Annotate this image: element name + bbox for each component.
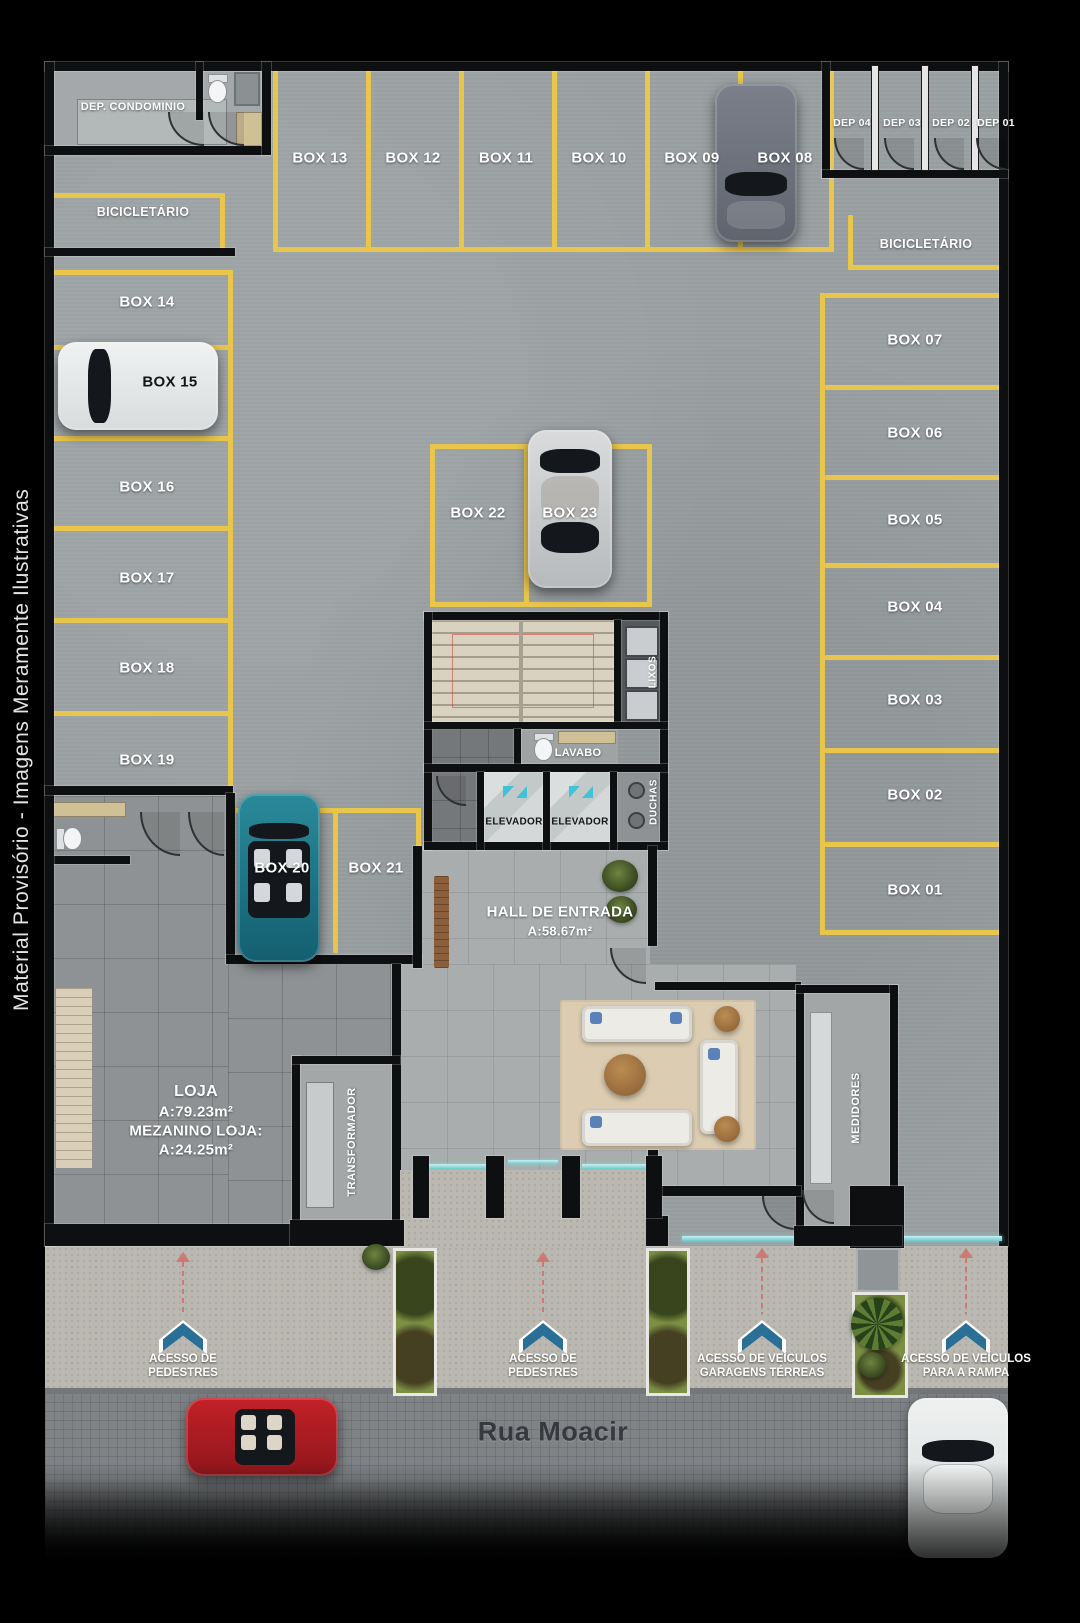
- box-label-15: BOX 15: [142, 374, 197, 391]
- access-label: ACESSO DE PEDESTRES: [148, 1352, 218, 1380]
- parking-line: [333, 808, 338, 953]
- access-line1: ACESSO DE: [509, 1353, 577, 1365]
- wall: [872, 66, 878, 170]
- lavabo-counter: [558, 731, 616, 744]
- stair-divider: [519, 620, 523, 722]
- dep-label-04: DEP 04: [833, 117, 871, 129]
- side-table: [714, 1116, 740, 1142]
- ramp-gate-glass: [902, 1236, 1002, 1241]
- watermark-text: Material Provisório - Imagens Meramente …: [2, 450, 42, 1050]
- wood-bench: [434, 876, 449, 968]
- toilet: [535, 739, 552, 760]
- wall: [514, 729, 521, 769]
- wc-vanity: [52, 802, 126, 817]
- hall-area: A:58.67m²: [528, 924, 593, 939]
- elevator-logo-icon: [569, 786, 593, 798]
- box-label-06: BOX 06: [887, 425, 942, 442]
- pillow: [590, 1116, 602, 1128]
- parking-line: [825, 385, 1005, 390]
- parking-line: [459, 70, 464, 250]
- access-line1: ACESSO DE VEÍCULOS: [697, 1353, 827, 1365]
- box-label-14: BOX 14: [119, 294, 174, 311]
- parking-line: [647, 444, 652, 607]
- box-label-05: BOX 05: [887, 512, 942, 529]
- room-label-duchas: DUCHAS: [649, 779, 660, 825]
- plant: [858, 1352, 886, 1378]
- parking-line: [273, 70, 278, 250]
- room-label-transformador: TRANSFORMADOR: [346, 1087, 358, 1196]
- access-label: ACESSO DE PEDESTRES: [508, 1352, 578, 1380]
- parking-line: [645, 70, 650, 250]
- direction-arrow-icon: [535, 1252, 551, 1318]
- box-label-23: BOX 23: [542, 505, 597, 522]
- staircase: [432, 620, 614, 722]
- box-label-20: BOX 20: [254, 860, 309, 877]
- box-label-10: BOX 10: [571, 150, 626, 167]
- access-line2: PEDESTRES: [148, 1367, 218, 1379]
- plant: [362, 1244, 390, 1270]
- trash-bin: [625, 626, 659, 657]
- facade-wall: [45, 1224, 295, 1246]
- parking-line: [552, 70, 557, 250]
- wall: [45, 146, 270, 155]
- box-label-17: BOX 17: [119, 570, 174, 587]
- parking-line: [848, 215, 853, 270]
- facade-pillar: [413, 1156, 429, 1218]
- wall: [45, 786, 233, 795]
- facade-pillar: [486, 1156, 504, 1218]
- parking-line: [825, 930, 1005, 935]
- parking-line: [430, 444, 435, 607]
- wall: [424, 764, 668, 772]
- wall: [413, 846, 422, 968]
- bottom-fade: [0, 1462, 1080, 1623]
- box-label-21: BOX 21: [348, 860, 403, 877]
- wall: [822, 170, 1008, 178]
- facade-wall: [794, 1226, 902, 1246]
- room-label-lavabo: LAVABO: [555, 747, 602, 759]
- parking-line: [50, 618, 233, 623]
- parking-line: [45, 193, 225, 198]
- wc-wall: [50, 856, 130, 864]
- wall: [262, 62, 271, 155]
- parking-line: [366, 70, 371, 250]
- wall: [822, 62, 830, 178]
- parking-line: [50, 270, 233, 275]
- entry-door-glass: [508, 1160, 558, 1164]
- meter-shelf: [810, 1012, 832, 1184]
- street-name: Rua Moacir: [478, 1417, 629, 1448]
- wall: [477, 772, 484, 850]
- parking-line: [50, 526, 233, 531]
- box-label-07: BOX 07: [887, 332, 942, 349]
- parking-line: [273, 247, 834, 252]
- dep-label-01: DEP 01: [977, 117, 1015, 129]
- car-teal-convertible: [238, 794, 320, 962]
- direction-arrow-icon: [958, 1248, 974, 1318]
- direction-arrow-icon: [175, 1252, 191, 1318]
- facade-wall: [290, 1220, 404, 1246]
- toilet: [209, 81, 226, 102]
- access-line2: GARAGENS TÉRREAS: [700, 1367, 825, 1379]
- shower-icon: [628, 812, 645, 829]
- box-label-02: BOX 02: [887, 787, 942, 804]
- planter-strip: [646, 1248, 690, 1396]
- access-line2: PARA A RAMPA: [923, 1367, 1009, 1379]
- elevator-left-cab: [484, 772, 544, 842]
- wall: [610, 772, 617, 850]
- entry-walkway: [400, 1170, 646, 1248]
- parking-line: [220, 193, 225, 248]
- loja-title: LOJA: [174, 1083, 218, 1101]
- room-label-dep-condominio: DEP. CONDOMINIO: [81, 101, 186, 113]
- trash-bin: [625, 690, 659, 721]
- parking-line: [825, 475, 1005, 480]
- side-table: [714, 1006, 740, 1032]
- box-label-22: BOX 22: [450, 505, 505, 522]
- pillow: [590, 1012, 602, 1024]
- box-label-08: BOX 08: [757, 150, 812, 167]
- wall: [45, 62, 54, 1246]
- wall: [543, 772, 550, 850]
- loja-mezanino-area: A:24.25m²: [159, 1142, 233, 1159]
- elevator-right-cab: [550, 772, 610, 842]
- ramp-pad: [856, 1248, 900, 1292]
- direction-arrow-icon: [754, 1248, 770, 1318]
- parking-line: [50, 436, 233, 441]
- loja-mezanino: MEZANINO LOJA:: [129, 1123, 262, 1140]
- parking-line: [430, 602, 652, 607]
- facade-glass: [424, 1164, 490, 1169]
- wall: [922, 66, 928, 170]
- parking-line: [848, 265, 1005, 270]
- wall: [796, 985, 898, 993]
- parking-line: [825, 655, 1005, 660]
- wall: [45, 248, 235, 256]
- facade-pillar: [562, 1156, 580, 1218]
- room-label-medidores: MEDIDORES: [850, 1072, 862, 1143]
- dep-label-03: DEP 03: [883, 117, 921, 129]
- wall: [292, 1056, 300, 1228]
- dep-label-02: DEP 02: [932, 117, 970, 129]
- wall: [655, 982, 801, 990]
- box-label-04: BOX 04: [887, 599, 942, 616]
- shower-icon: [628, 782, 645, 799]
- box-label-19: BOX 19: [119, 752, 174, 769]
- parking-line: [825, 293, 1005, 298]
- access-line1: ACESSO DE VEÍCULOS: [901, 1353, 1031, 1365]
- shower-pan: [234, 72, 260, 106]
- box-label-16: BOX 16: [119, 479, 174, 496]
- wall: [644, 1216, 668, 1246]
- wall: [292, 1056, 400, 1064]
- parking-line: [825, 842, 1005, 847]
- wall: [660, 612, 668, 850]
- access-label: ACESSO DE VEÍCULOS GARAGENS TÉRREAS: [697, 1352, 827, 1380]
- box-label-13: BOX 13: [292, 150, 347, 167]
- core-corridor: [432, 729, 516, 765]
- plant: [602, 860, 638, 892]
- wall: [655, 1186, 801, 1196]
- hall-title: HALL DE ENTRADA: [487, 904, 634, 921]
- room-label-bicicletario-right: BICICLETÁRIO: [880, 237, 973, 251]
- wall: [648, 846, 657, 946]
- floor-plan-illustration: Rua Moacir: [0, 0, 1080, 1623]
- elevator-logo-icon: [503, 786, 527, 798]
- wall: [424, 612, 432, 850]
- room-label-lixos: LIXOS: [648, 656, 659, 689]
- box-label-01: BOX 01: [887, 882, 942, 899]
- box-label-09: BOX 09: [664, 150, 719, 167]
- box-label-11: BOX 11: [479, 150, 533, 167]
- wood-deck: [56, 988, 92, 1168]
- parking-line: [50, 711, 233, 716]
- facade-glass: [582, 1164, 652, 1169]
- wall: [424, 612, 668, 620]
- pillow: [708, 1048, 720, 1060]
- parking-line: [825, 563, 1005, 568]
- loja-area: A:79.23m²: [159, 1104, 233, 1121]
- wall: [999, 62, 1008, 1246]
- transformer-equipment: [306, 1082, 334, 1208]
- parking-line: [825, 748, 1005, 753]
- room-label-elevador-right: ELEVADOR: [551, 817, 608, 828]
- access-label: ACESSO DE VEÍCULOS PARA A RAMPA: [901, 1352, 1031, 1380]
- room-label-bicicletario-left: BICICLETÁRIO: [97, 205, 190, 219]
- pillow: [670, 1012, 682, 1024]
- palm-tree: [851, 1298, 903, 1350]
- facade-pillar: [646, 1156, 662, 1218]
- wall: [614, 620, 621, 726]
- wall: [424, 722, 668, 729]
- room-label-elevador-left: ELEVADOR: [485, 817, 542, 828]
- access-line2: PEDESTRES: [508, 1367, 578, 1379]
- access-line1: ACESSO DE: [149, 1353, 217, 1365]
- round-table: [604, 1054, 646, 1096]
- toilet: [64, 828, 81, 849]
- wall: [45, 62, 1008, 71]
- box-label-12: BOX 12: [385, 150, 440, 167]
- box-label-03: BOX 03: [887, 692, 942, 709]
- wall: [226, 793, 235, 963]
- planter-strip: [393, 1248, 437, 1396]
- box-label-18: BOX 18: [119, 660, 174, 677]
